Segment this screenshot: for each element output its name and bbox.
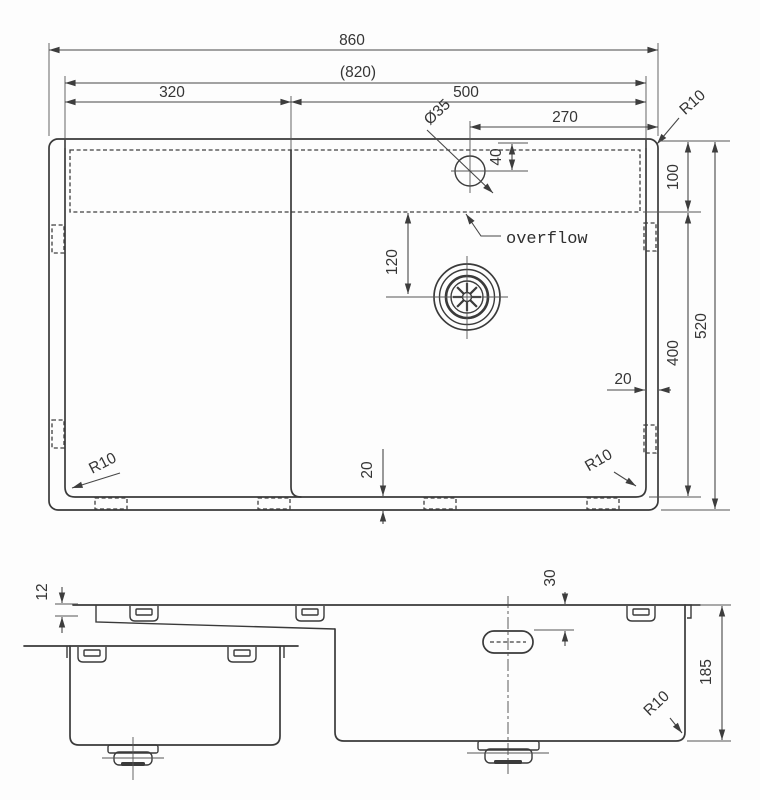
sink-drawing-canvas: 860 (820) 320 500 270 Ø35 40	[0, 0, 760, 800]
dim-inner-width: (820)	[65, 64, 646, 148]
left-bowl-section	[24, 646, 298, 780]
dim-label-40: 40	[488, 148, 505, 166]
drainboard-profile	[96, 605, 335, 629]
dim-bowl-depth: 185	[687, 605, 731, 741]
dim-label-d35: Ø35	[421, 96, 454, 128]
sink-outer-outline	[49, 139, 658, 510]
dim-rim-edge: 12	[34, 583, 78, 633]
technical-drawing-page: 860 (820) 320 500 270 Ø35 40	[0, 0, 760, 800]
dim-label-270: 270	[552, 109, 578, 126]
dim-right-bowl: 500	[291, 84, 646, 102]
dim-overflow-offset-top: 30	[534, 569, 574, 646]
section-view: 12 30 185 R10	[24, 569, 731, 780]
dim-label-520: 520	[693, 313, 710, 339]
dim-right-gap: 20	[607, 371, 671, 390]
dim-label-320: 320	[159, 84, 185, 101]
radius-callout-bottom-right: R10	[582, 446, 636, 486]
radius-callout-bottom-left: R10	[72, 449, 120, 488]
radius-label-bl: R10	[86, 449, 119, 477]
dim-bottom-gap: 20	[359, 449, 383, 524]
left-drain-fitting	[102, 737, 164, 780]
sink-inner-outline	[65, 139, 646, 497]
overflow-label: overflow	[506, 230, 588, 249]
radius-label-br: R10	[582, 446, 615, 475]
dim-left-section: 320	[65, 84, 291, 102]
radius-callout-top-right: R10	[657, 87, 709, 144]
dim-label-100: 100	[665, 164, 682, 190]
rim-right-edge	[687, 605, 691, 618]
main-bowl-profile	[335, 605, 685, 741]
radius-label-tr: R10	[676, 87, 709, 119]
dim-ledge-height: 100	[643, 141, 730, 212]
dim-label-120: 120	[384, 249, 401, 275]
rim-clips	[130, 606, 655, 621]
dim-drain-offset: 120	[384, 213, 426, 297]
overflow-ledge-hidden-edge	[70, 150, 640, 212]
dim-label-30: 30	[542, 569, 559, 587]
dim-overall-depth: 520	[661, 142, 730, 510]
bowl-divider-wall	[291, 150, 301, 497]
dim-bowl-height: 400	[649, 213, 701, 497]
dim-label-12: 12	[34, 583, 51, 600]
dim-faucet-offset-right: 270	[470, 109, 658, 127]
drain-strainer	[426, 256, 508, 339]
radius-label-section: R10	[640, 687, 673, 719]
top-view: 860 (820) 320 500 270 Ø35 40	[49, 32, 730, 524]
dim-label-820: (820)	[340, 64, 376, 81]
overflow-callout: overflow	[466, 214, 588, 249]
dim-label-185: 185	[698, 659, 715, 685]
dim-label-860: 860	[339, 32, 365, 49]
dim-label-500: 500	[453, 84, 479, 101]
mounting-clips-hidden	[52, 223, 656, 509]
dim-label-20-bottom: 20	[359, 461, 376, 479]
radius-callout-section: R10	[640, 687, 682, 733]
dim-label-400: 400	[665, 340, 682, 366]
dim-label-20-right: 20	[614, 371, 632, 388]
dim-faucet-offset-top: 40	[488, 143, 528, 170]
